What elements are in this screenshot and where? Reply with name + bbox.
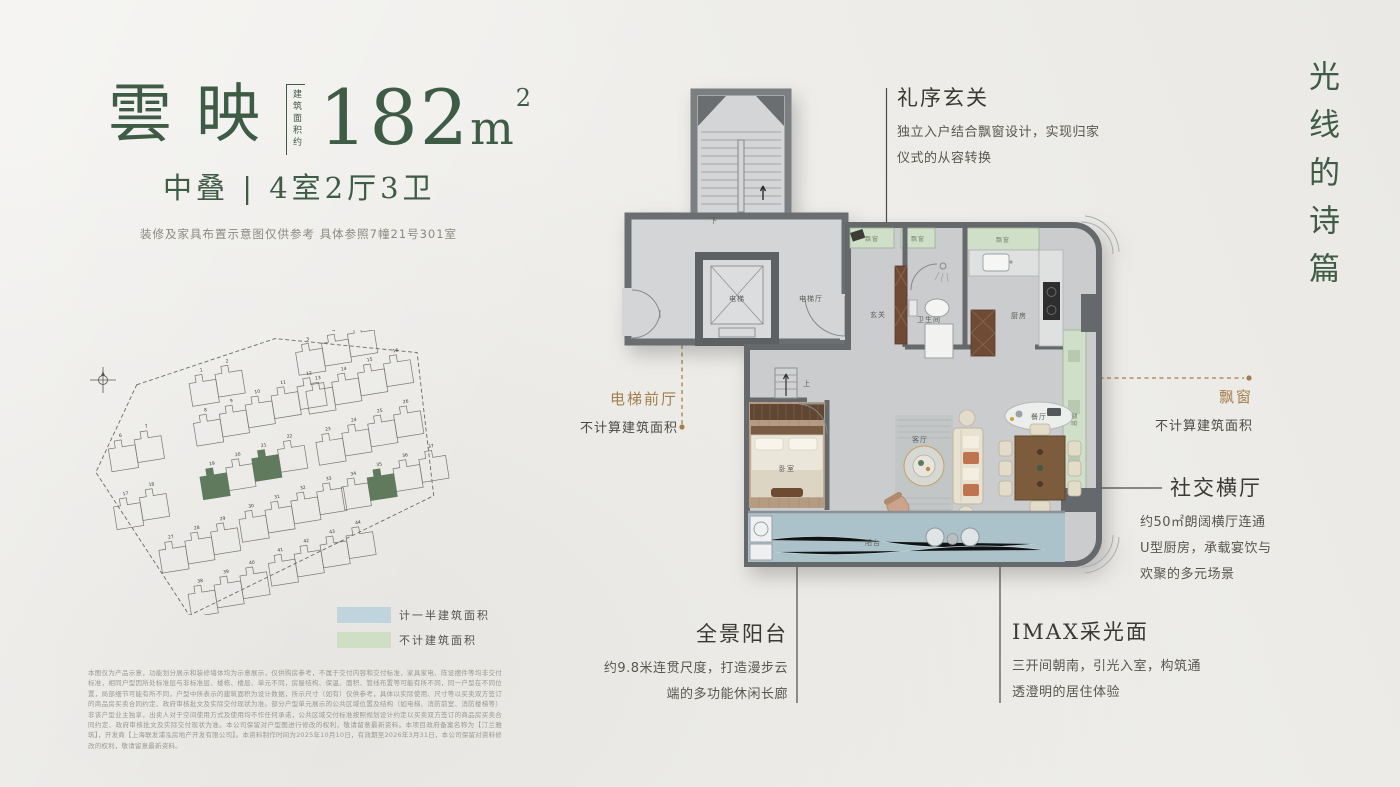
site-building-number: 24: [351, 417, 358, 424]
site-building: [192, 412, 223, 446]
label-elevator-hall: 电梯厅: [799, 294, 823, 303]
annotation-balcony: 全景阳台 约9.8米连贯尺度，打造漫步云 端的多功能休闲长廊: [560, 618, 788, 708]
site-building-number: 12: [306, 370, 313, 377]
site-building: [345, 525, 376, 559]
annotation-elevator-title: 电梯前厅: [498, 388, 678, 409]
site-building: [382, 353, 413, 387]
legend-label: 计一半建筑面积: [399, 607, 490, 623]
site-building-number: 28: [194, 525, 201, 532]
site-building-number: 36: [402, 452, 409, 459]
site-building-number: 10: [254, 389, 261, 396]
label-bay-window: 飘窗: [911, 235, 925, 243]
site-building-number: 43: [329, 529, 336, 536]
site-building: [356, 362, 387, 396]
site-building-number: 3: [306, 336, 310, 342]
site-building: [112, 496, 143, 530]
site-building-number: 1: [199, 367, 203, 373]
site-building: [187, 583, 218, 615]
annotation-entry-title: 礼序玄关: [897, 82, 1127, 112]
annotation-imax-desc: 三开间朝南，引光入室，构筑通 透澄明的居住体验: [1012, 654, 1252, 706]
site-building-number: 29: [219, 516, 226, 523]
legend-swatch-green: [337, 632, 391, 648]
site-building: [264, 499, 295, 533]
site-building: [340, 476, 371, 510]
site-building-number: 37: [428, 443, 435, 450]
site-building: [276, 438, 307, 472]
site-building-number: 4: [332, 330, 336, 334]
site-building: [293, 543, 324, 577]
site-building-number: 22: [286, 433, 293, 440]
label-bathroom: 卫生间: [917, 315, 941, 324]
site-building-number: 38: [197, 578, 204, 585]
site-building: [107, 438, 138, 472]
label-bay-window: 飘窗: [1070, 413, 1078, 427]
label-bay-window: 飘窗: [996, 236, 1010, 244]
site-building-number: 27: [168, 534, 175, 541]
site-plan: 1234567891011121314151617181920212223242…: [85, 330, 465, 615]
site-building-number: 32: [300, 485, 307, 492]
site-building: [341, 422, 372, 456]
compass-icon: [90, 367, 116, 393]
site-building-number: 35: [376, 461, 383, 468]
legend-row-no-area: 不计建筑面积: [337, 632, 490, 648]
site-building: [184, 530, 215, 564]
site-building: [138, 487, 169, 521]
label-foyer: 玄关: [870, 310, 886, 319]
site-building-number: 6: [119, 433, 123, 439]
site-building: [188, 372, 219, 406]
legend-row-half-area: 计一半建筑面积: [337, 607, 490, 623]
site-building-number: 31: [274, 494, 281, 501]
label-bedroom: 卧室: [779, 464, 795, 473]
site-building-number: 8: [204, 407, 208, 413]
site-building: [251, 448, 282, 482]
site-building-number: 40: [249, 560, 256, 567]
site-building: [295, 341, 326, 375]
site-building: [418, 448, 449, 482]
annotation-social-title: 社交横厅: [1170, 472, 1310, 502]
annotation-balcony-title: 全景阳台: [560, 618, 788, 648]
site-building-number: 2: [225, 358, 229, 364]
label-bay-window: 飘窗: [865, 235, 879, 243]
site-building-number: 34: [350, 471, 357, 478]
site-building-number: 19: [209, 461, 216, 468]
disclaimer-text: 本图仅为产品示意，功能划分展示和装修墙体均为示意展示，仅供购房参考，不属于交付内…: [88, 668, 502, 751]
label-living: 客厅: [912, 435, 928, 444]
site-building: [213, 574, 244, 608]
site-building: [270, 385, 301, 419]
side-slogan: 光线的诗篇: [1299, 60, 1344, 300]
site-building: [320, 332, 351, 366]
label-elevator: 电梯: [729, 294, 745, 303]
site-building: [244, 394, 275, 428]
site-building: [346, 330, 377, 357]
label-dining: 餐厅: [1031, 412, 1047, 421]
reference-note: 装修及家具布置示意图仅供参考 具体参照7幢21号301室: [140, 226, 457, 242]
site-building-number: 9: [230, 398, 234, 404]
annotation-social-desc: 约50㎡朗阔横厅连通 U型厨房，承载宴饮与 欢聚的多元场景: [1140, 510, 1310, 588]
site-building: [133, 429, 164, 463]
site-building-number: 42: [303, 538, 310, 545]
site-building-number: 21: [260, 442, 267, 449]
poster-page: 雲映 建筑面积约 182m2 中叠 | 4室2厅3卫 装修及家具布置示意图仅供参…: [0, 0, 1400, 787]
site-building-number: 39: [223, 569, 230, 576]
site-building: [315, 431, 346, 465]
plan-name: 雲映: [108, 80, 284, 150]
site-building-number: 33: [325, 475, 332, 482]
site-building-number: 18: [148, 481, 155, 488]
label-stairs-down: 下: [710, 217, 718, 225]
legend-swatch-blue: [337, 607, 391, 623]
site-building: [367, 413, 398, 447]
site-building-number: 17: [122, 490, 129, 497]
site-building-number: 41: [277, 547, 284, 554]
annotation-elevator-lobby: 电梯前厅 不计算建筑面积: [498, 388, 678, 436]
site-building: [225, 457, 256, 491]
site-building-number: 14: [341, 366, 348, 373]
site-building-number: 20: [235, 451, 242, 458]
site-building: [290, 490, 321, 524]
site-building-number: 26: [402, 399, 409, 406]
site-building-number: 30: [248, 503, 255, 510]
site-building: [305, 380, 336, 414]
site-building-number: 23: [325, 426, 332, 433]
site-building-number: 15: [366, 357, 373, 364]
site-building: [218, 403, 249, 437]
area-value: 182m2: [319, 80, 533, 156]
site-building: [316, 481, 347, 515]
site-building-number: 13: [315, 375, 322, 382]
site-building: [319, 534, 350, 568]
site-building: [158, 539, 189, 573]
annotation-bay-desc: 不计算建筑面积: [1100, 415, 1253, 434]
annotation-elevator-desc: 不计算建筑面积: [498, 417, 678, 436]
label-kitchen: 厨房: [1011, 311, 1027, 320]
site-building: [392, 404, 423, 438]
annotation-entry: 礼序玄关 独立入户结合飘窗设计，实现归家 仪式的从容转换: [897, 82, 1127, 172]
site-building-number: 11: [280, 379, 287, 386]
legend-label: 不计建筑面积: [399, 632, 477, 648]
header: 雲映 建筑面积约 182m2: [108, 80, 533, 156]
site-building-number: 16: [392, 347, 399, 354]
site-building: [392, 458, 423, 492]
site-building: [199, 466, 230, 500]
annotation-balcony-desc: 约9.8米连贯尺度，打造漫步云 端的多功能休闲长廊: [560, 656, 788, 708]
annotation-entry-desc: 独立入户结合飘窗设计，实现归家 仪式的从容转换: [897, 120, 1127, 172]
label-balcony: 阳台: [865, 538, 881, 547]
site-building-number: 25: [376, 408, 383, 415]
area-prefix-label: 建筑面积约: [286, 84, 305, 155]
site-building-number: 44: [355, 519, 362, 526]
annotation-imax: IMAX采光面 三开间朝南，引光入室，构筑通 透澄明的居住体验: [1012, 616, 1252, 706]
site-building: [210, 521, 241, 555]
annotation-social-hall: 社交横厅 约50㎡朗阔横厅连通 U型厨房，承载宴饮与 欢聚的多元场景: [1140, 472, 1310, 588]
annotation-imax-title: IMAX采光面: [1012, 616, 1252, 646]
site-building: [239, 565, 270, 599]
legend: 计一半建筑面积 不计建筑面积: [337, 607, 490, 657]
site-building: [214, 363, 245, 397]
site-building: [296, 376, 327, 410]
annotation-bay-title: 飘窗: [1100, 386, 1253, 407]
layout-subtitle: 中叠 | 4室2厅3卫: [163, 165, 436, 207]
site-building-number: 7: [144, 424, 148, 430]
label-stairs-up: 上: [803, 379, 811, 388]
site-building: [366, 467, 397, 501]
annotation-bay-window: 飘窗 不计算建筑面积: [1100, 386, 1253, 434]
site-building: [331, 371, 362, 405]
site-building: [238, 508, 269, 542]
